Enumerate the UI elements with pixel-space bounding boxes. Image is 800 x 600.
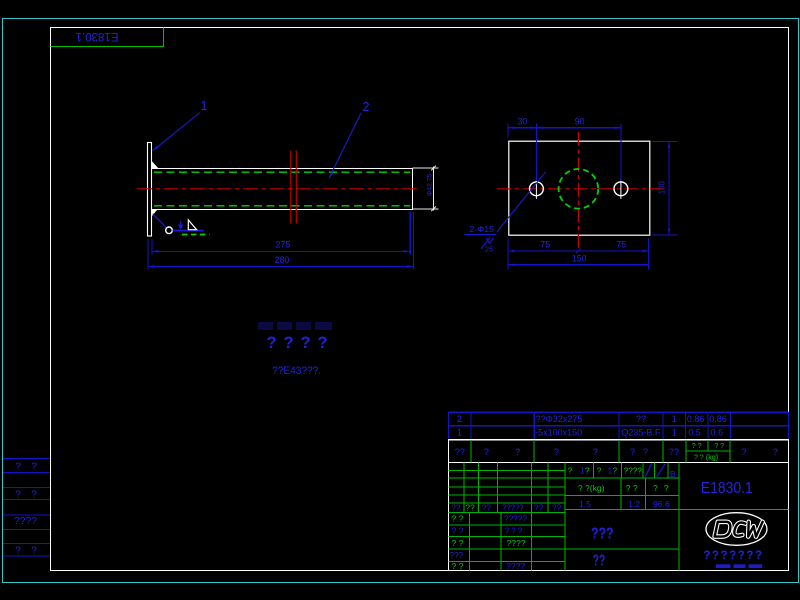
- svg-text:??Φ32x275: ??Φ32x275: [536, 414, 583, 424]
- svg-text:90: 90: [575, 116, 585, 126]
- svg-text:? ?: ? ?: [452, 561, 464, 571]
- svg-text:??: ??: [669, 446, 679, 457]
- svg-text:?: ?: [613, 466, 618, 475]
- svg-text:? ?: ? ?: [452, 538, 464, 548]
- svg-text:????: ????: [624, 466, 643, 475]
- svg-text:??: ??: [454, 446, 464, 457]
- svg-text:1: 1: [457, 427, 462, 437]
- svg-text:??: ??: [451, 503, 461, 512]
- svg-text:150: 150: [572, 253, 587, 263]
- svg-text:-5x100x150: -5x100x150: [535, 427, 582, 437]
- svg-text:?: ?: [301, 334, 311, 352]
- svg-text:??E43???.: ??E43???.: [272, 365, 321, 377]
- svg-text:? ?(kg): ? ?(kg): [578, 483, 605, 493]
- svg-text:1: 1: [201, 99, 208, 113]
- svg-text:???????: ???????: [703, 550, 763, 562]
- svg-text:30: 30: [518, 116, 528, 126]
- svg-text:B: B: [670, 469, 676, 479]
- svg-text:280: 280: [275, 255, 290, 265]
- svg-text:?: ?: [568, 466, 573, 475]
- svg-text:Q235-B.F: Q235-B.F: [621, 427, 661, 437]
- svg-text:100: 100: [658, 181, 667, 195]
- svg-text:?: ?: [592, 446, 597, 457]
- svg-text:0.6: 0.6: [711, 427, 724, 437]
- svg-text:?: ?: [664, 483, 669, 493]
- svg-text:?: ?: [585, 466, 590, 475]
- svg-text:1: 1: [672, 427, 677, 437]
- svg-text:E1830.1: E1830.1: [76, 30, 119, 42]
- svg-text:25: 25: [485, 245, 493, 254]
- svg-text:?: ?: [773, 446, 778, 457]
- svg-text:Φ42.75: Φ42.75: [426, 174, 433, 197]
- svg-text:1:2: 1:2: [628, 499, 640, 509]
- svg-text:? ?: ? ?: [452, 514, 464, 524]
- svg-text:?: ?: [284, 334, 294, 352]
- svg-text:2: 2: [457, 414, 462, 424]
- svg-text:?: ?: [515, 446, 520, 457]
- svg-text:??: ??: [636, 414, 646, 424]
- svg-text:???: ???: [591, 525, 614, 542]
- svg-text:275: 275: [276, 240, 291, 250]
- svg-text:2: 2: [363, 100, 370, 114]
- svg-text:0.86: 0.86: [709, 414, 727, 424]
- svg-text:?: ?: [318, 334, 328, 352]
- svg-text:????: ????: [14, 516, 37, 527]
- svg-text:0.86: 0.86: [687, 414, 705, 424]
- svg-text:E1830.1: E1830.1: [701, 480, 753, 497]
- svg-text:??: ??: [466, 503, 476, 512]
- svg-text:?: ?: [31, 461, 37, 472]
- svg-text:?: ?: [484, 446, 489, 457]
- svg-text:? ?: ? ?: [452, 526, 464, 536]
- svg-text:? ?: ? ?: [692, 441, 702, 450]
- svg-text:? ? ?: ? ? ?: [505, 527, 523, 536]
- svg-text:?: ?: [267, 334, 277, 352]
- svg-text:??: ??: [552, 503, 562, 512]
- svg-text:96.6: 96.6: [653, 499, 670, 509]
- svg-text:?????: ?????: [504, 515, 527, 524]
- svg-text:????: ????: [506, 538, 525, 548]
- svg-text:?: ?: [15, 461, 21, 472]
- svg-text:??: ??: [593, 553, 606, 570]
- svg-text:? ?: ? ?: [626, 483, 638, 493]
- svg-text:?: ?: [15, 546, 21, 557]
- svg-text:2-Φ15: 2-Φ15: [469, 225, 494, 234]
- svg-text:1: 1: [672, 414, 677, 424]
- svg-text:75: 75: [616, 239, 626, 249]
- svg-text:?: ?: [554, 446, 559, 457]
- svg-text:????: ????: [506, 561, 525, 571]
- svg-text:?: ?: [653, 483, 658, 493]
- svg-text:?: ?: [630, 446, 635, 457]
- svg-text:? ?: ? ?: [714, 441, 724, 450]
- svg-text:?????: ?????: [502, 503, 524, 512]
- svg-text:?: ?: [15, 489, 21, 500]
- svg-text:75: 75: [540, 239, 550, 249]
- svg-text:?: ?: [643, 446, 648, 457]
- svg-text:???: ???: [450, 551, 464, 560]
- svg-text:?: ?: [741, 446, 746, 457]
- svg-text:?: ?: [31, 546, 37, 557]
- svg-text:? ? (kg): ? ? (kg): [694, 452, 718, 461]
- svg-text:??: ??: [534, 503, 544, 512]
- svg-text:?: ?: [597, 466, 602, 475]
- svg-text:?: ?: [31, 489, 37, 500]
- svg-text:??: ??: [482, 503, 492, 512]
- svg-text:0.5: 0.5: [688, 427, 701, 437]
- svg-text:1.5: 1.5: [579, 499, 591, 509]
